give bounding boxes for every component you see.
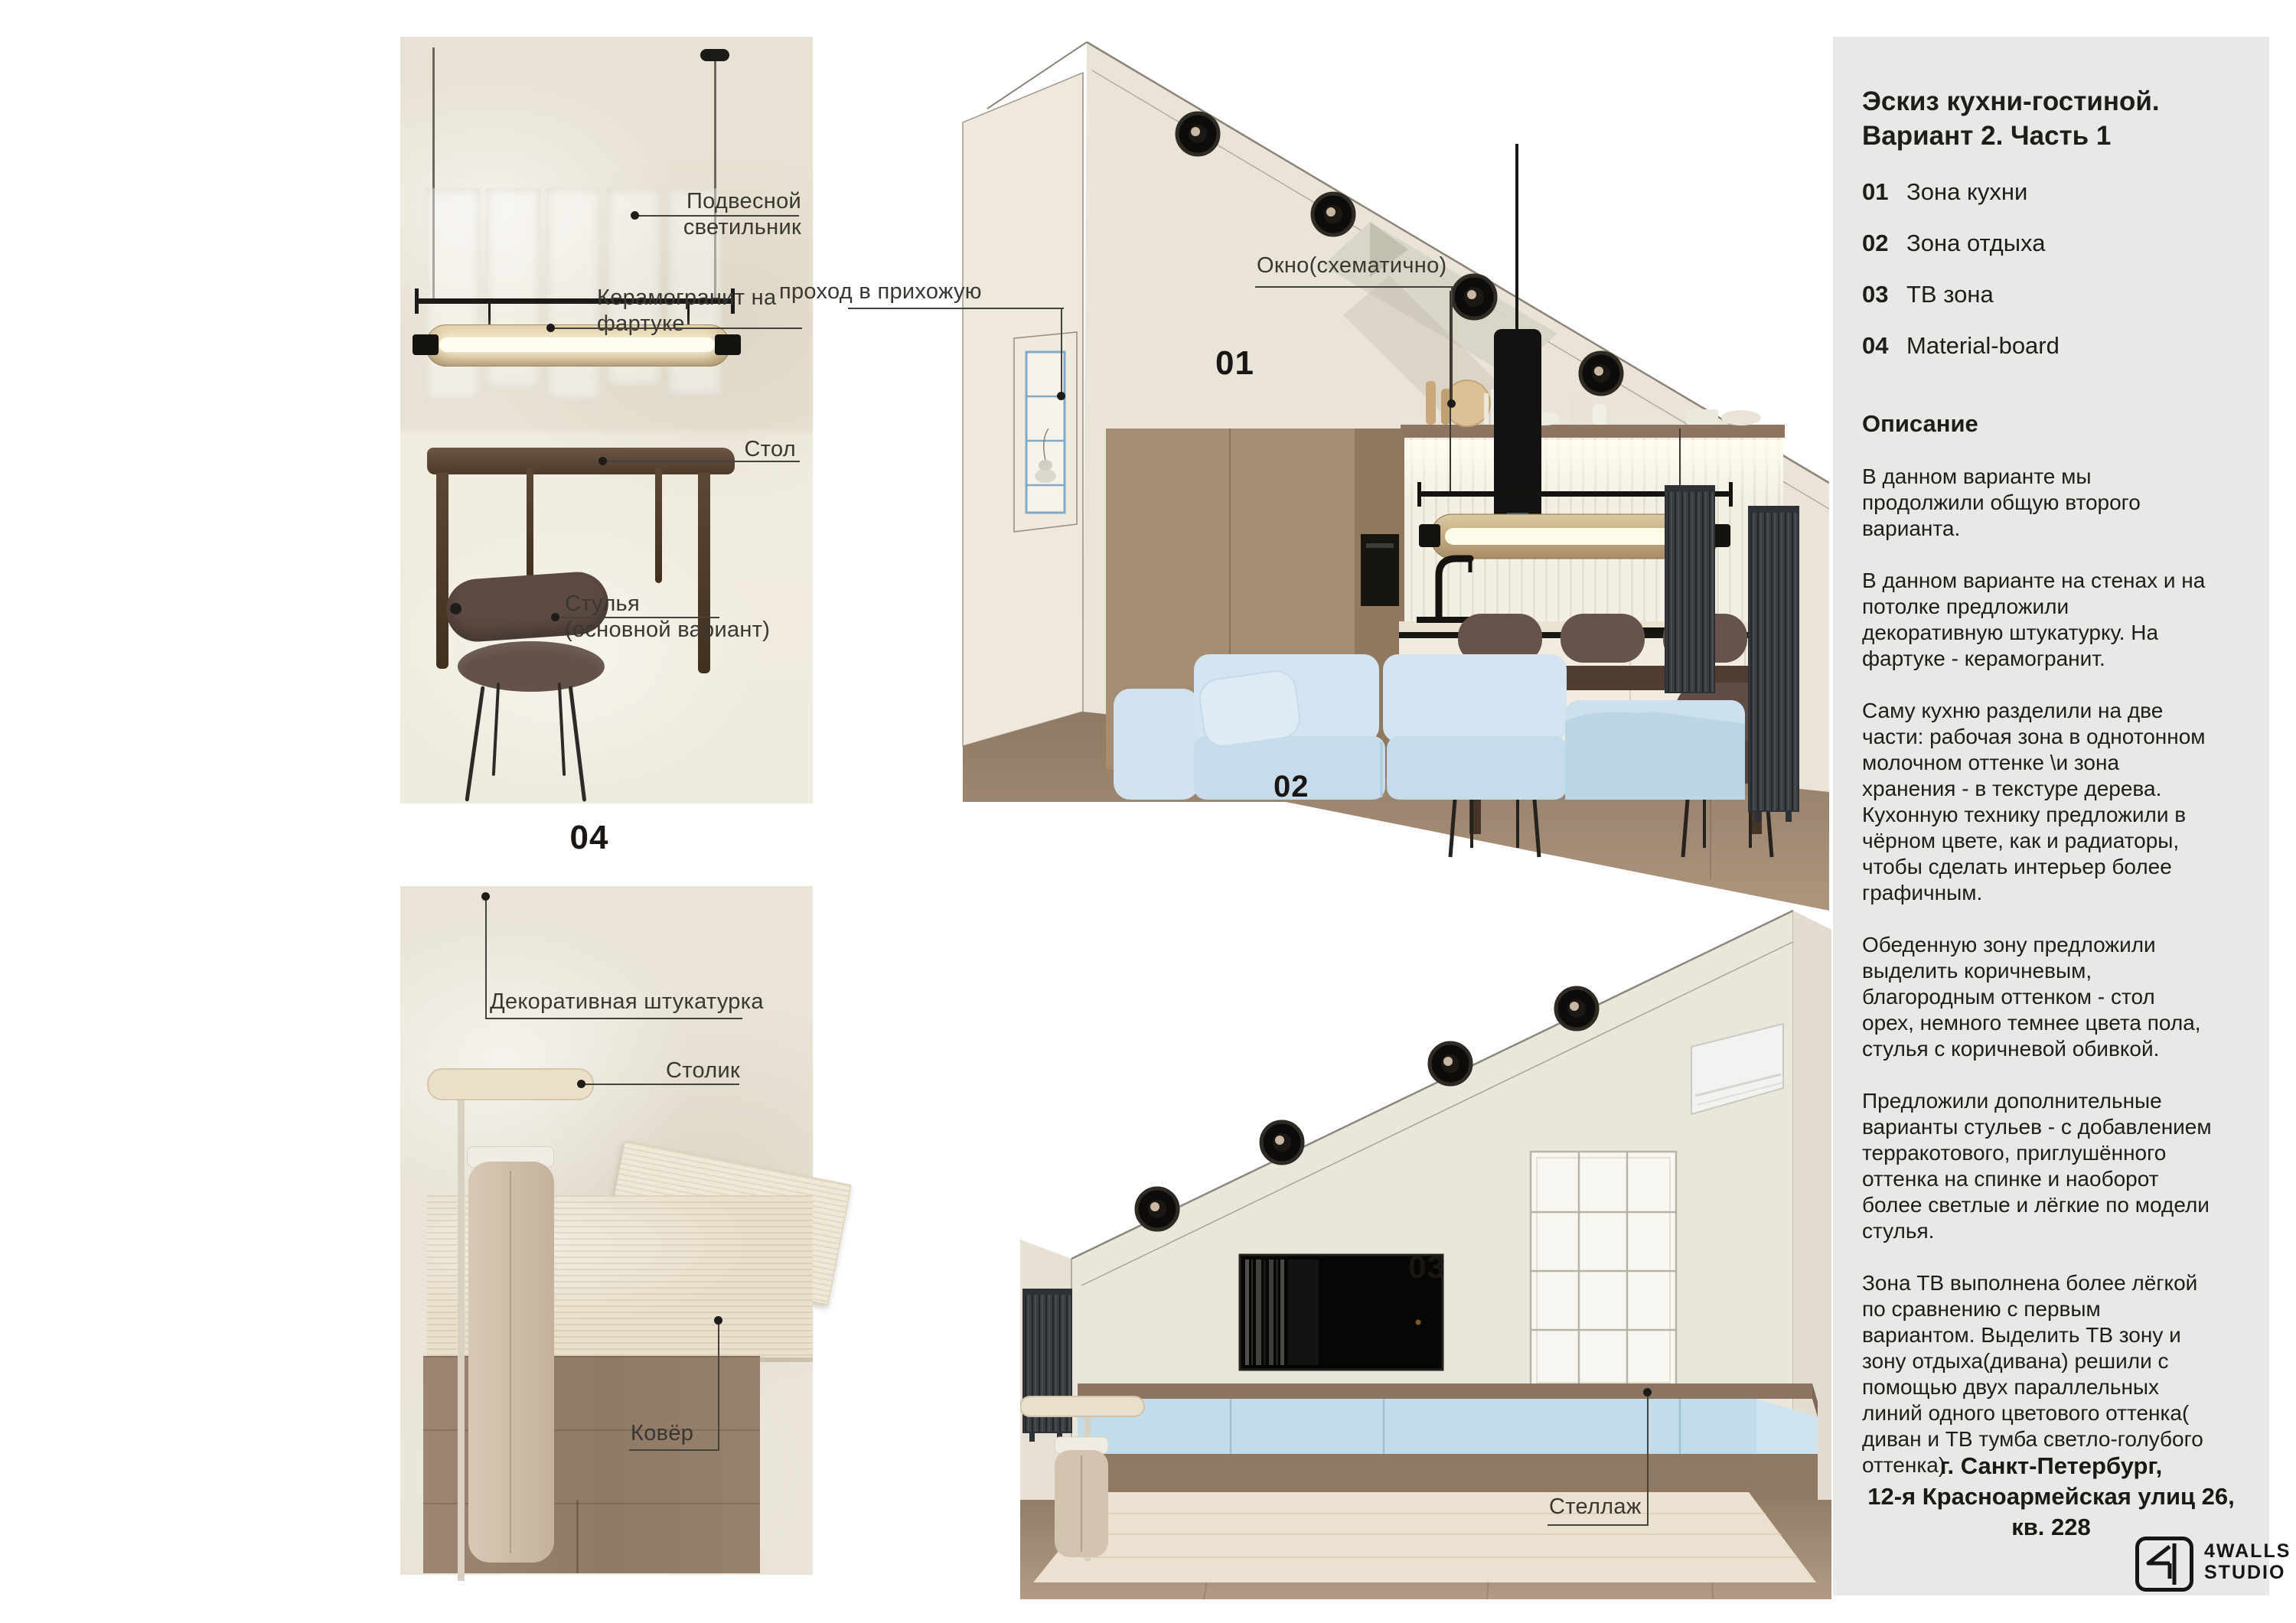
pendant-bar-cap-left (1417, 482, 1421, 507)
board-number: 04 (532, 819, 647, 857)
description-paragraph-5: Предложили дополнительные варианты стуль… (1862, 1088, 2239, 1244)
label-pendant-light: Подвесной светильник (639, 188, 801, 240)
page-title: Эскиз кухни-гостиной. Вариант 2. Часть 1 (1862, 84, 2239, 153)
leader-dot-hallway (1057, 392, 1065, 400)
leader-dot-window (1447, 399, 1456, 408)
zone-item-number: 02 (1862, 230, 1906, 256)
leader-dot-table (598, 457, 607, 465)
leader-table (605, 461, 800, 462)
pendant-bar-end-left (415, 288, 419, 314)
pendant-canopy (700, 49, 729, 61)
vase-upper (1039, 460, 1052, 471)
studio-logo-text: 4WALLS STUDIO (2204, 1540, 2291, 1583)
side-table-top (427, 1068, 594, 1100)
pendant-hanger-left (488, 304, 491, 327)
page-title-line2: Вариант 2. Часть 1 (1862, 119, 2239, 153)
zone-item-label: Зона кухни (1906, 179, 2027, 204)
leader-chairs (557, 617, 719, 618)
pendant-lamp-tube (439, 337, 715, 352)
zone-list: 01 Зона кухни 02 Зона отдыха 03 ТВ зона … (1862, 179, 2239, 358)
leader-side-table (583, 1084, 739, 1085)
description-paragraph-1: В данном варианте мы продолжили общую вт… (1862, 464, 2239, 542)
description-paragraph-6: Зона ТВ выполнена более лёгкой по сравне… (1862, 1270, 2239, 1478)
leader-carpet (629, 1449, 719, 1451)
leader-pendant (637, 215, 799, 217)
cooker-hood (1494, 329, 1541, 537)
label-table: Стол (643, 436, 796, 462)
vase-lower (1035, 469, 1056, 483)
address-line3: кв. 228 (1833, 1512, 2269, 1543)
label-side-table: Столик (666, 1058, 740, 1084)
side-table-body (468, 1162, 554, 1563)
table-leg-back-right (655, 468, 662, 583)
pendant-lamp-cap-left (413, 334, 439, 355)
pendant-cap-left (1419, 524, 1440, 547)
shelving-unit (1531, 1152, 1676, 1389)
description-paragraph-4: Обеденную зону предложили выделить корич… (1862, 932, 2239, 1062)
leader-dot-side-table (577, 1080, 585, 1088)
radiator-large (1749, 507, 1799, 822)
material-board-top-panel (400, 37, 813, 803)
label-window: Окно(схематично) (1257, 253, 1446, 279)
logo-4-glyph (2139, 1540, 2190, 1588)
logo-line2: STUDIO (2204, 1562, 2291, 1583)
leader-plaster (485, 1018, 742, 1019)
description-heading: Описание (1862, 410, 2239, 438)
wood-ledge (1078, 1383, 1812, 1399)
leader-dot-chairs (551, 613, 559, 621)
description-paragraph-3: Саму кухню разделили на две части: рабоч… (1862, 698, 2239, 906)
pendant-lamp-cap-right (715, 334, 741, 355)
leader-v-plaster (485, 897, 487, 1018)
zone-item-number: 03 (1862, 282, 1906, 307)
leader-dot-carpet (714, 1316, 722, 1325)
leader-window (1255, 286, 1454, 288)
leader-dot-ceramic (546, 324, 555, 332)
address-line2: 12-я Красноармейская улиц 26, (1833, 1481, 2269, 1512)
side-table-stem (458, 1094, 465, 1581)
zone-item-number: 01 (1862, 179, 1906, 204)
zone-01-label: 01 (1215, 344, 1254, 383)
page-title-line1: Эскиз кухни-гостиной. (1862, 84, 2239, 119)
label-plaster: Декоративная штукатурка (490, 989, 764, 1015)
table-leg-front-right (698, 473, 710, 673)
zone-item-label: Зона отдыха (1906, 230, 2045, 256)
zone-item-label: ТВ зона (1906, 282, 1994, 307)
leader-v-carpet (718, 1321, 719, 1449)
render-kitchen-living (960, 23, 1829, 911)
description-paragraph-2: В данном варианте на стенах и на потолке… (1862, 568, 2239, 672)
logo-line1: 4WALLS (2204, 1540, 2291, 1562)
tv-right-face (1793, 911, 1831, 1500)
zone-item-number: 04 (1862, 333, 1906, 358)
studio-logo-icon (2135, 1537, 2193, 1592)
label-shelving: Стеллаж (1549, 1494, 1642, 1520)
zone-item-label: Material-board (1906, 333, 2060, 358)
zone-list-item-03: 03 ТВ зона (1862, 282, 2239, 307)
chair-knob (450, 603, 461, 614)
oven-display (1366, 543, 1394, 548)
display-case-frame (1026, 352, 1065, 513)
address-line1: г. Санкт-Петербург, (1833, 1451, 2269, 1481)
zone-03-label: 03 (1408, 1249, 1446, 1286)
zone-list-item-01: 01 Зона кухни (1862, 179, 2239, 204)
tv-console-blue (1078, 1399, 1756, 1454)
zone-list-item-04: 04 Material-board (1862, 333, 2239, 358)
zone-02-label: 02 (1274, 770, 1309, 804)
label-hallway: проход в прихожую (779, 279, 970, 305)
pendant-bar-cap-right (1729, 482, 1733, 507)
leader-v-window (1451, 286, 1453, 401)
open-shelf (1401, 425, 1785, 438)
leader-dot-pendant (631, 211, 639, 220)
leader-hallway (848, 308, 1064, 309)
leader-ceramic (553, 328, 802, 329)
leader-v-shelving (1647, 1394, 1649, 1526)
table-leg-front-left (436, 473, 448, 669)
side-table-seam (510, 1171, 511, 1553)
label-carpet: Ковёр (631, 1420, 693, 1446)
zone-list-item-02: 02 Зона отдыха (1862, 230, 2239, 256)
project-address: г. Санкт-Петербург, 12-я Красноармейская… (1833, 1451, 2269, 1543)
wood-floor-joint (576, 1500, 579, 1573)
table-leg-back-left (527, 468, 533, 582)
tv-radiator (1023, 1289, 1071, 1442)
leader-shelving (1548, 1524, 1649, 1526)
leader-dot-shelving (1643, 1388, 1652, 1396)
sidebar: Эскиз кухни-гостиной. Вариант 2. Часть 1… (1833, 37, 2269, 1595)
leader-v-hallway (1061, 308, 1062, 393)
chair-seat (458, 641, 605, 692)
render-tv-zone (1020, 888, 1831, 1599)
radiator-small (1665, 486, 1714, 693)
tv-carpet (1033, 1492, 1816, 1582)
leader-dot-plaster (481, 892, 490, 901)
presentation-page: Подвесной светильник Керамогранит на фар… (0, 0, 2296, 1623)
